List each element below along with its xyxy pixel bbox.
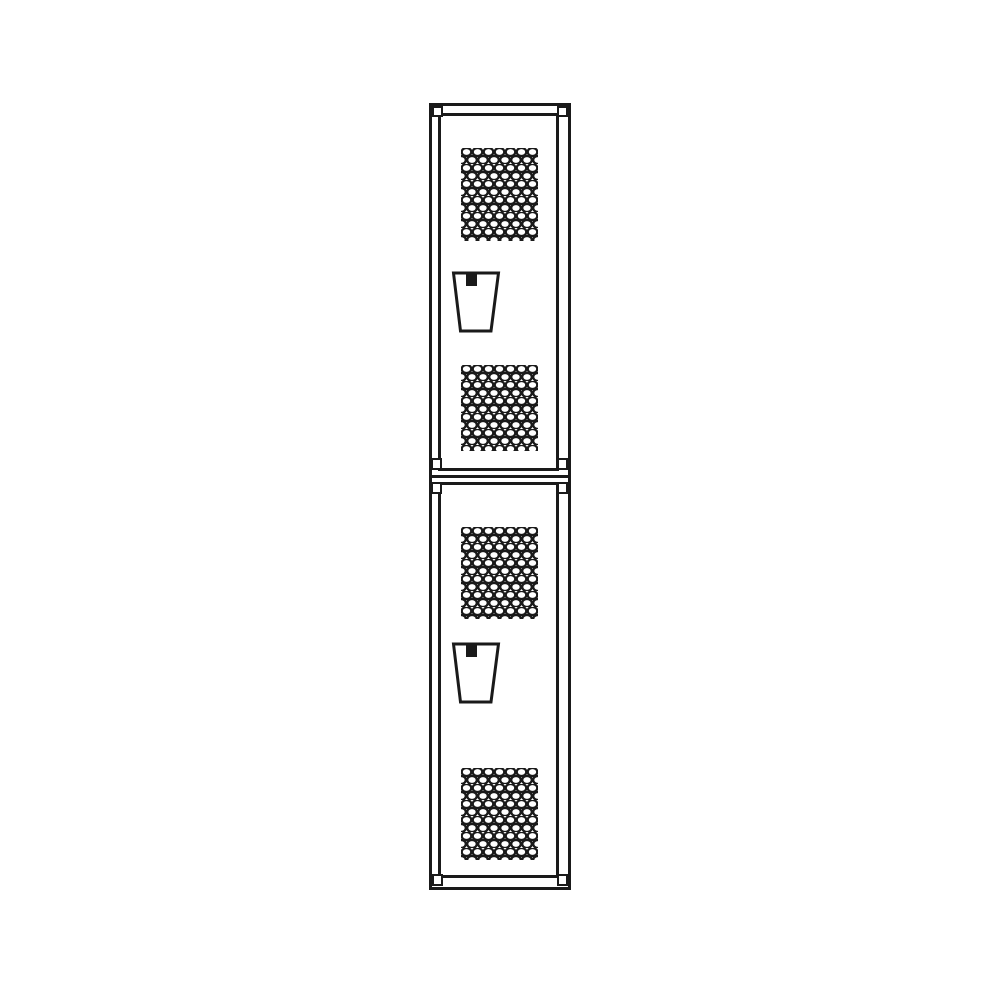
frame-notch-divider-lower-left xyxy=(431,482,442,494)
lower-door-handle-icon xyxy=(451,642,501,704)
tier-divider-line xyxy=(432,475,568,478)
upper-door-handle-icon xyxy=(451,271,501,333)
lower-door-top-vent-icon xyxy=(461,527,538,619)
upper-door-top-vent-icon xyxy=(461,148,538,241)
frame-notch-divider-lower-right xyxy=(557,482,568,494)
locker-product-drawing xyxy=(0,0,1000,1000)
frame-notch-divider-upper-left xyxy=(431,458,442,470)
frame-notch-bottom-left xyxy=(432,874,443,886)
frame-notch-top-right xyxy=(557,106,568,117)
frame-notch-bottom-right xyxy=(557,874,568,886)
upper-door-bottom-vent-icon xyxy=(461,365,538,451)
frame-notch-top-left xyxy=(432,106,443,117)
lower-door-bottom-vent-icon xyxy=(461,768,538,860)
frame-notch-divider-upper-right xyxy=(557,458,568,470)
